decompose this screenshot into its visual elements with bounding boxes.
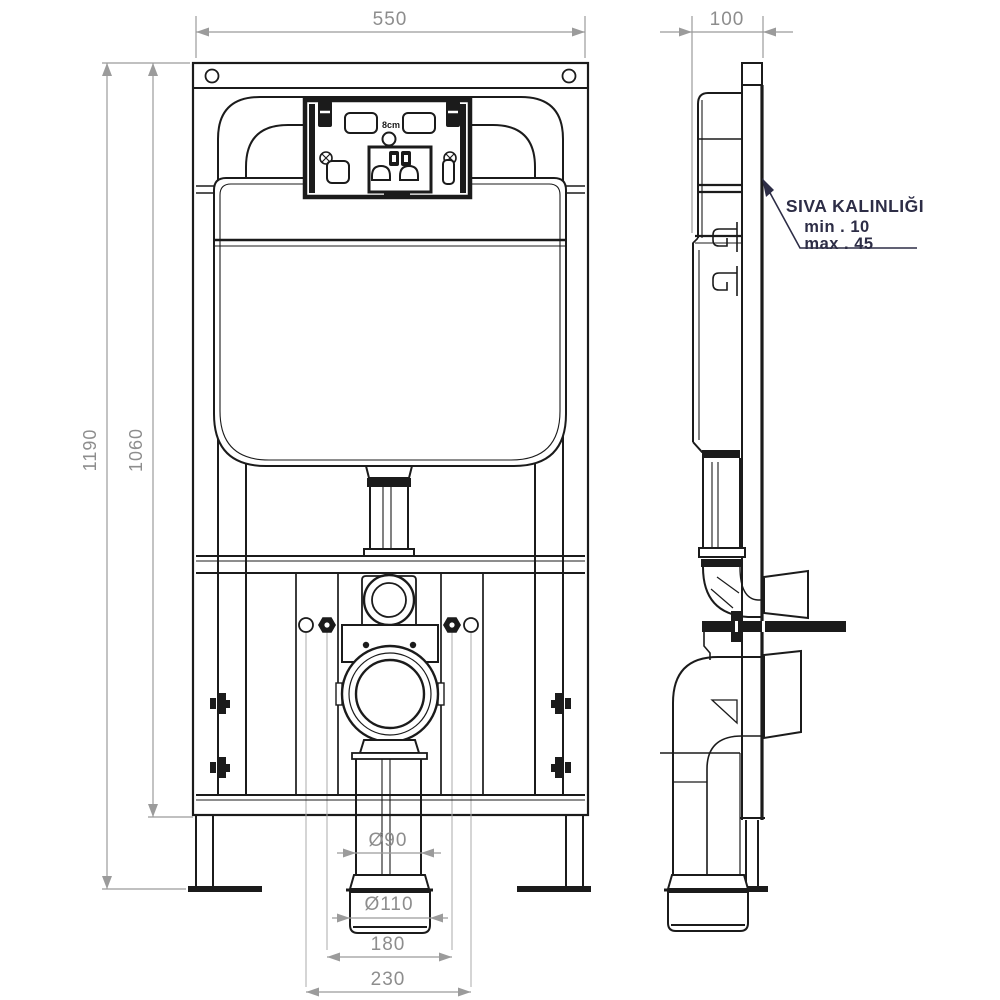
opening-left	[345, 113, 377, 133]
drain-ring-inner	[356, 660, 424, 728]
flush-valve-box	[369, 147, 431, 199]
screw-post-right	[446, 101, 460, 127]
slot-lower-right	[443, 160, 454, 184]
pan-stub-lower	[764, 651, 801, 738]
side-view: SIVA KALINLIĞI min . 10 max . 45	[660, 63, 924, 931]
plaster-note-title: SIVA KALINLIĞI	[786, 195, 924, 216]
dim-frame-height-label: 1190	[80, 429, 100, 472]
dim-bolt-spacing-180-label: 180	[371, 934, 406, 955]
side-cistern	[693, 93, 742, 442]
dim-bolt-spacing-230-label: 230	[371, 969, 406, 990]
plaster-note-max: max . 45	[804, 235, 873, 253]
side-upright	[742, 85, 762, 820]
dimension-frame-depth	[660, 16, 793, 233]
drain-lower-flange	[360, 740, 419, 753]
opening-lower-left	[327, 161, 349, 183]
drain-coupling-side	[664, 875, 750, 931]
flush-button-left	[372, 166, 390, 180]
access-box: 8cm	[305, 100, 470, 199]
dim-inner-height-label: 1060	[126, 428, 146, 472]
dim-pipe-diameter-label: Ø90	[369, 830, 408, 851]
screw-post-left	[318, 101, 332, 127]
drawing-sheet: 550 100 1190 1060	[0, 0, 1000, 1000]
dimension-inner-height	[148, 63, 193, 817]
wall-fixing-bar	[702, 611, 846, 660]
plaster-note-min: min . 10	[804, 218, 869, 236]
plaster-note: SIVA KALINLIĞI min . 10 max . 45	[762, 178, 924, 253]
bolt-hole-outer-left	[299, 618, 313, 632]
cistern-depth-label: 8cm	[382, 120, 400, 130]
dim-frame-width-label: 550	[373, 9, 408, 30]
leader-arrow	[762, 178, 774, 197]
dimension-frame-height	[102, 63, 190, 889]
top-bar-hole-right	[563, 70, 576, 83]
top-bar-hole-left	[206, 70, 219, 83]
inlet-ring-inner	[372, 583, 406, 617]
side-flush-pipe	[693, 442, 762, 617]
dim-coupling-diameter-label: Ø110	[364, 894, 413, 915]
hanger-hook-lower	[713, 266, 737, 296]
bolt-hole-outer-right	[464, 618, 478, 632]
technical-drawing-canvas: 550 100 1190 1060	[0, 0, 1000, 1000]
dim-frame-depth-label: 100	[710, 9, 745, 30]
pan-stub-upper	[764, 571, 808, 618]
foot-right	[517, 886, 591, 892]
flush-button-right	[400, 166, 418, 180]
cistern-tank	[214, 178, 566, 466]
foot-left	[188, 886, 262, 892]
side-top-bar	[742, 63, 762, 85]
center-hole	[383, 133, 396, 146]
opening-right	[403, 113, 435, 133]
